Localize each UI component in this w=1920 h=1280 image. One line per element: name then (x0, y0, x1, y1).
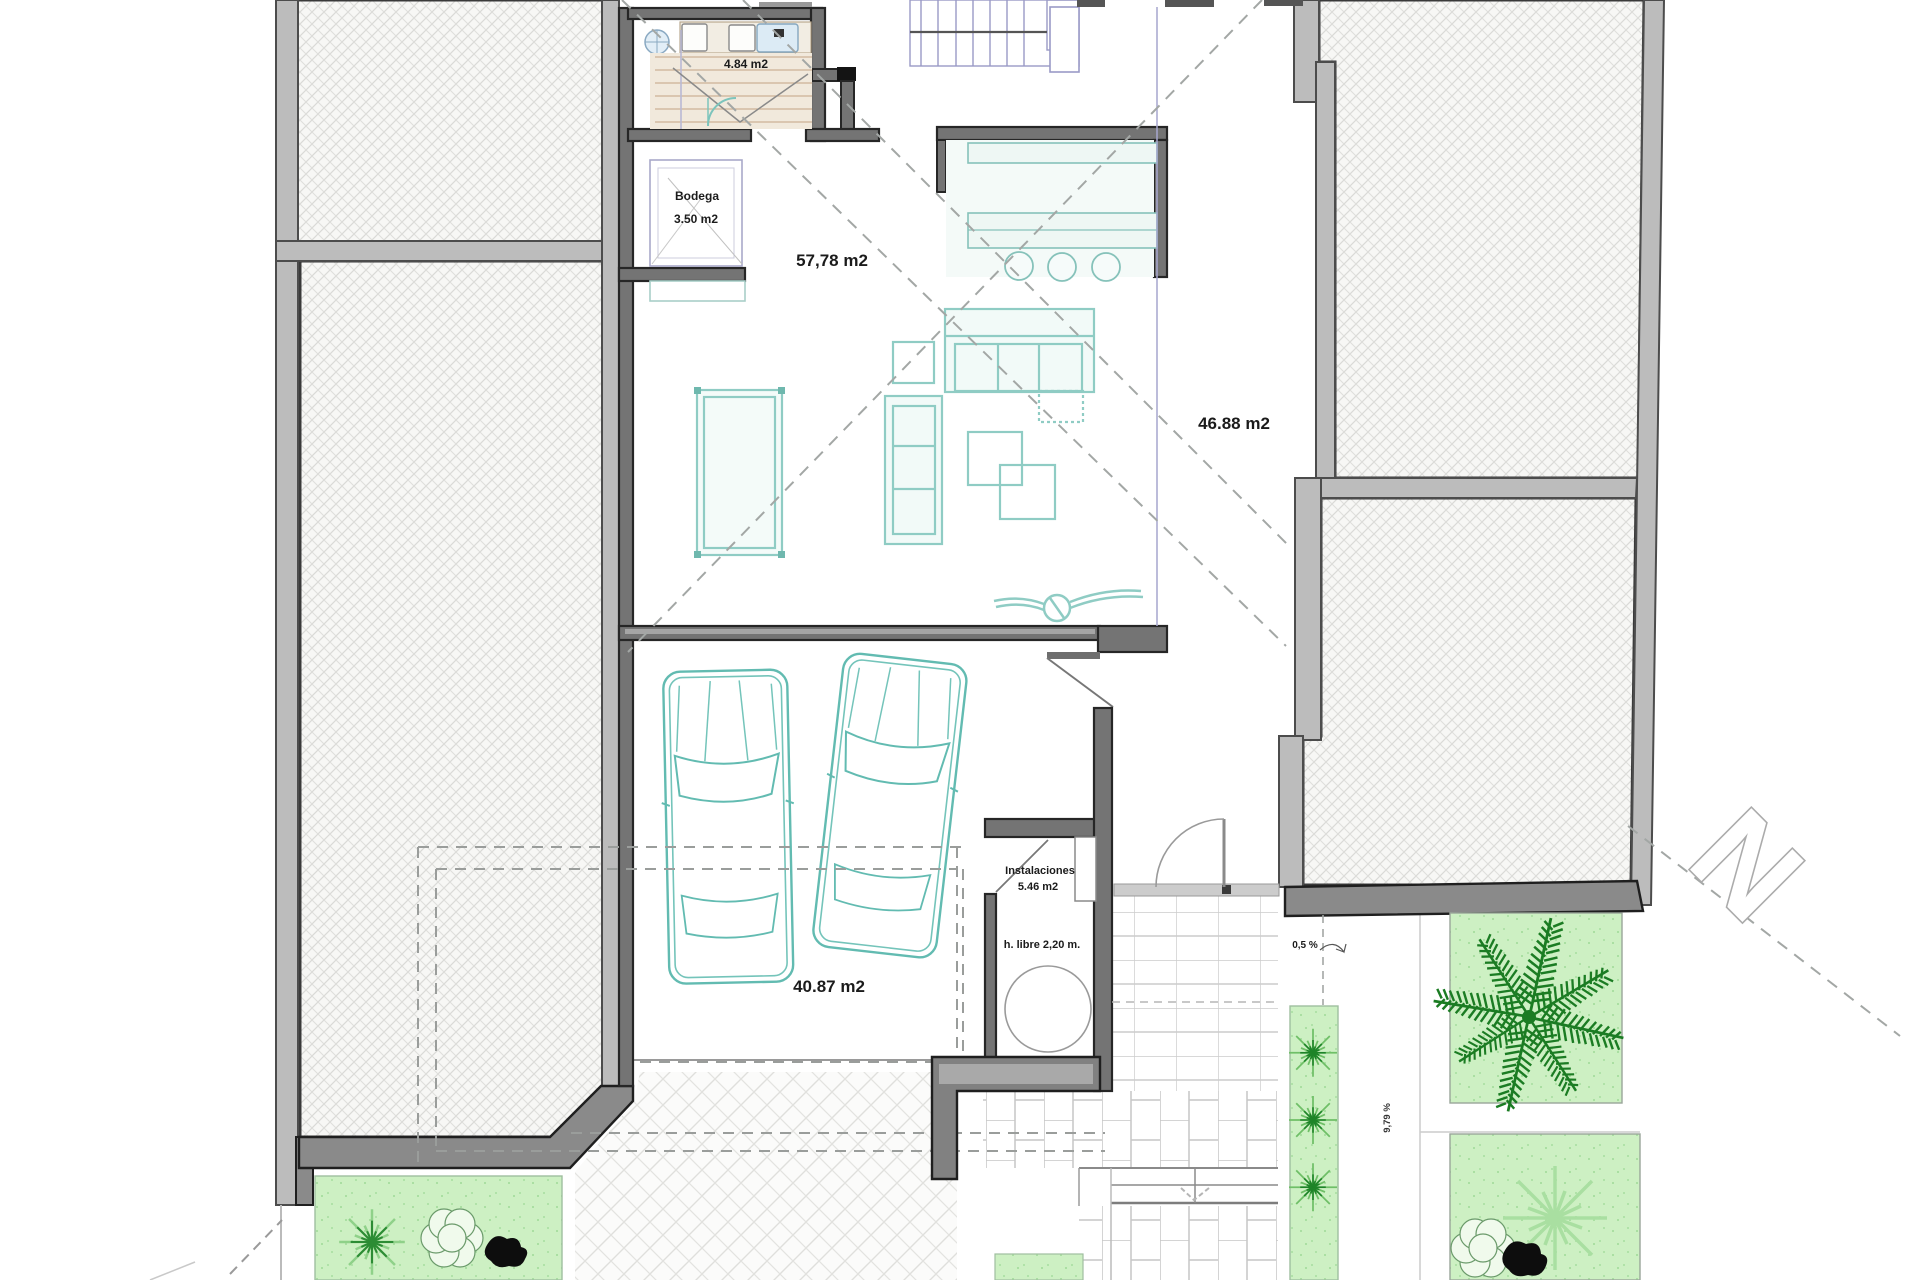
svg-text:3.50 m2: 3.50 m2 (674, 212, 718, 226)
svg-text:57,78 m2: 57,78 m2 (796, 251, 868, 270)
svg-text:46.88 m2: 46.88 m2 (1198, 414, 1270, 433)
svg-text:Instalaciones: Instalaciones (1005, 865, 1075, 877)
svg-text:40.87 m2: 40.87 m2 (793, 977, 865, 996)
svg-text:h. libre 2,20 m.: h. libre 2,20 m. (1004, 939, 1080, 951)
svg-text:5.46 m2: 5.46 m2 (1018, 881, 1058, 893)
svg-text:4.84 m2: 4.84 m2 (724, 57, 768, 71)
svg-text:0,5 %: 0,5 % (1292, 940, 1318, 951)
svg-text:9,79 %: 9,79 % (1382, 1103, 1393, 1133)
svg-text:Bodega: Bodega (675, 189, 719, 203)
